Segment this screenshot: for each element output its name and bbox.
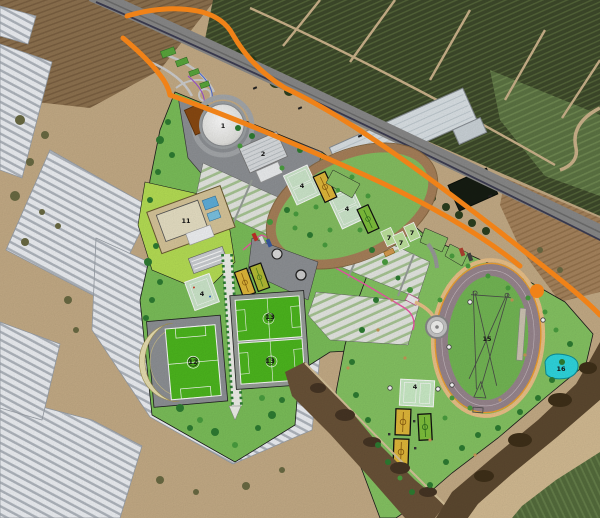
- label-stadium: 12: [188, 358, 197, 366]
- orange-road-terminus: [530, 284, 544, 298]
- label-court7-a: 7: [387, 234, 392, 242]
- label-pitch-a: 13: [265, 313, 274, 321]
- master-plan-screenshot: 1 2 4 4 4 4 7 7 7 11 12 13 13 15 16: [0, 0, 600, 518]
- label-sports-hall: 2: [261, 150, 266, 158]
- label-court7-b: 7: [399, 239, 404, 247]
- label-court-east: 4: [413, 383, 418, 391]
- label-athletics-track: 15: [482, 335, 492, 343]
- label-court-west: 4: [200, 290, 205, 298]
- label-tennis-b: 4: [345, 205, 350, 213]
- label-pitch-b: 13: [265, 357, 274, 365]
- label-dome: 1: [221, 122, 226, 130]
- label-pond: 16: [556, 365, 566, 373]
- label-tennis-a: 4: [300, 182, 305, 190]
- master-plan-map: 1 2 4 4 4 4 7 7 7 11 12 13 13 15 16: [0, 0, 600, 518]
- label-court7-c: 7: [410, 229, 415, 237]
- label-pool: 11: [181, 217, 191, 225]
